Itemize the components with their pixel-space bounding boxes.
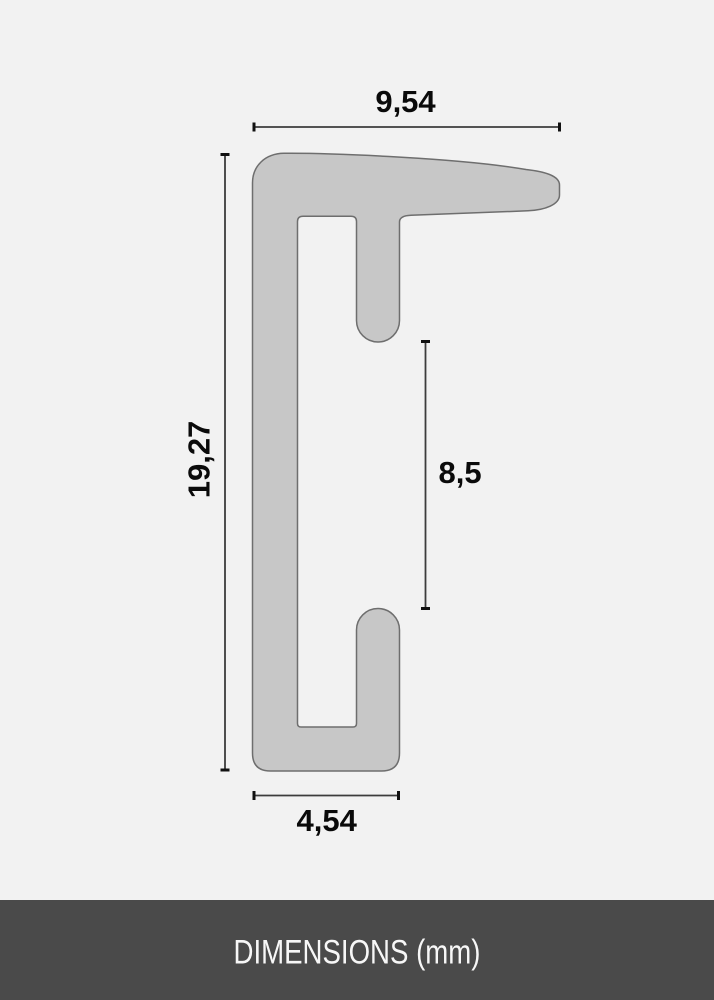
- svg-text:DIMENSIONS (mm): DIMENSIONS (mm): [234, 934, 481, 972]
- svg-text:19,27: 19,27: [182, 421, 217, 499]
- svg-text:8,5: 8,5: [439, 455, 482, 490]
- svg-text:4,54: 4,54: [297, 803, 358, 838]
- svg-text:9,54: 9,54: [375, 84, 436, 119]
